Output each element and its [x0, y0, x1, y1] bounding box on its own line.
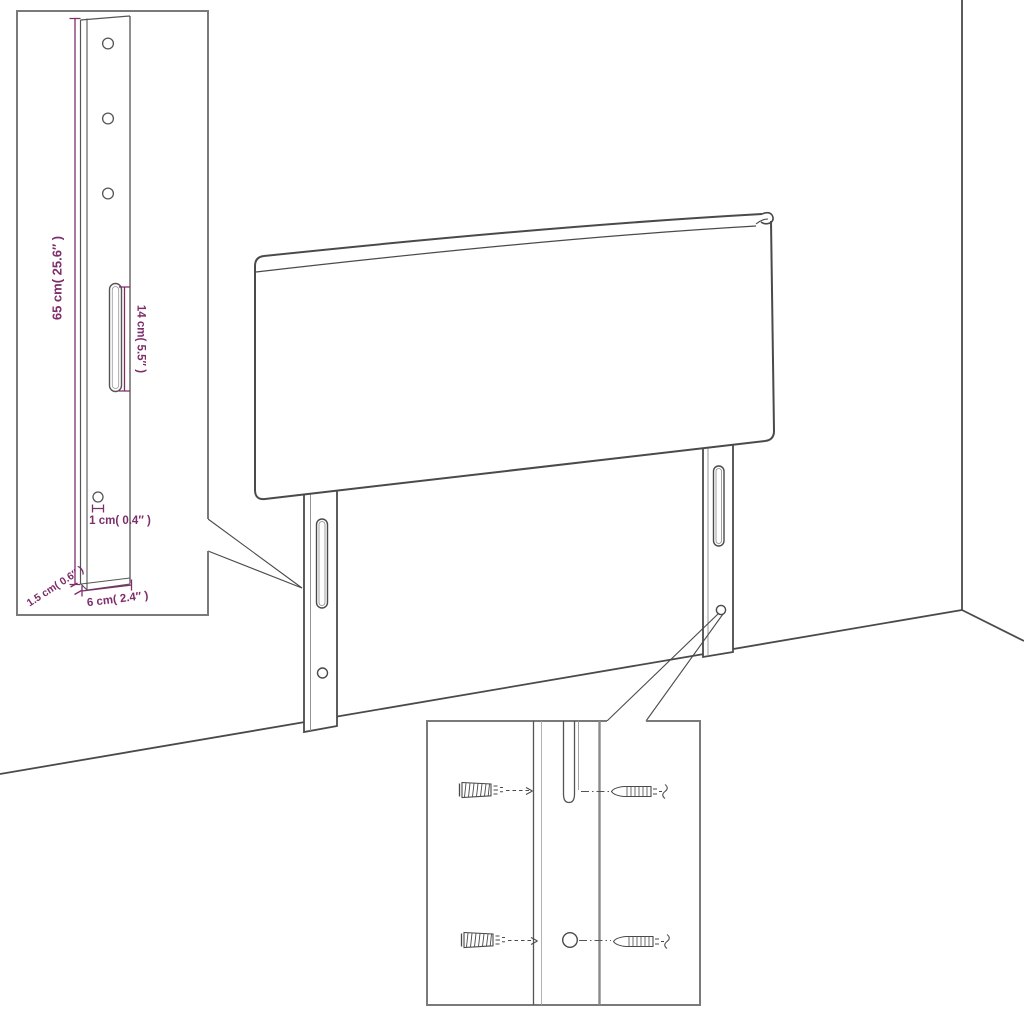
bracket-detail-inset: 65 cm( 25.6″ ) 14 cm( 5.5″ ) 1 cm( 0.4″ … [17, 11, 208, 615]
floor-line-right [962, 610, 1024, 641]
left-leg-hole [318, 668, 328, 678]
bracket-slot [110, 284, 122, 392]
bracket-hole-3 [103, 188, 114, 199]
bracket-hole-1 [103, 38, 114, 49]
slot-length-label: 14 cm( 5.5″ ) [135, 305, 147, 373]
inset-leg-hole [563, 933, 578, 948]
bracket-bottom-hole [93, 492, 103, 502]
right-leg-hole [716, 605, 725, 614]
headboard-panel [255, 213, 774, 499]
headboard-diagram: 65 cm( 25.6″ ) 14 cm( 5.5″ ) 1 cm( 0.4″ … [0, 0, 1024, 1024]
bracket-hole-2 [103, 113, 114, 124]
left-leg [304, 488, 337, 732]
left-leg-slot [317, 519, 328, 608]
bracket-height-label: 65 cm( 25.6″ ) [50, 236, 65, 320]
hardware-detail-inset [427, 721, 700, 1005]
diagram-canvas: 65 cm( 25.6″ ) 14 cm( 5.5″ ) 1 cm( 0.4″ … [0, 0, 1024, 1024]
callout-left-inset [208, 519, 302, 588]
right-leg-slot [714, 466, 725, 546]
hole-diameter-label: 1 cm( 0.4″ ) [89, 515, 151, 527]
